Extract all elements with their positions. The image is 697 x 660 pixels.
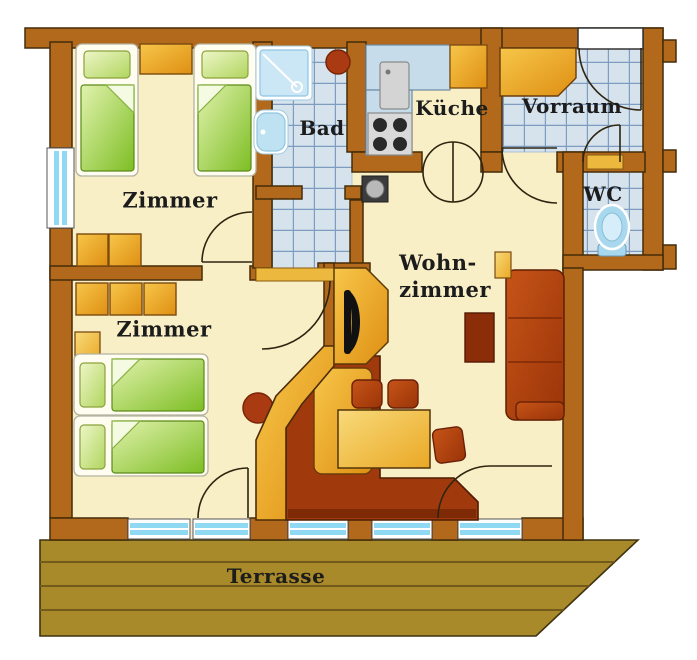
- bed-single: [76, 44, 138, 176]
- nightstand: [140, 44, 192, 74]
- terrace-door-bedroom2-glass: [193, 519, 250, 539]
- bed-double: [74, 354, 208, 476]
- wall-bath-east-lower: [350, 200, 363, 268]
- wall-bottom: [348, 518, 372, 540]
- coffee-table: [465, 313, 494, 362]
- wall-mid-band: [481, 152, 502, 172]
- wall-wc-west: [563, 152, 583, 270]
- toilet: [595, 205, 629, 256]
- wall-bedroom-divider: [50, 266, 202, 280]
- bath-sink: [254, 110, 288, 154]
- wall-pilaster: [663, 150, 676, 172]
- wall-bottom: [250, 518, 288, 540]
- wall-right-upper: [643, 28, 663, 270]
- dining-table: [338, 410, 430, 468]
- label-toilet: WC: [583, 182, 622, 206]
- bed-single: [194, 44, 256, 176]
- utility-column: [362, 176, 388, 202]
- window-left: [47, 148, 74, 228]
- hall-wardrobe: [500, 48, 576, 96]
- boiler: [326, 50, 350, 74]
- label-terrace: Terrasse: [227, 564, 326, 588]
- wall-left: [50, 42, 72, 148]
- kitchen-sink: [380, 62, 409, 109]
- wardrobe: [77, 234, 141, 266]
- wall-bath-stub: [345, 186, 361, 199]
- window-bottom: [372, 519, 432, 539]
- terrace-door-living-glass: [458, 519, 522, 539]
- sofa: [506, 270, 564, 420]
- label-bedroom2: Zimmer: [116, 317, 211, 342]
- label-bathroom: Bad: [299, 116, 344, 140]
- kitchen-cabinet: [450, 45, 487, 88]
- label-living-room: Wohn- zimmer: [399, 249, 491, 303]
- label-living-line2: zimmer: [399, 276, 491, 303]
- floor-plan: Zimmer Zimmer Bad Küche Vorraum WC Wohn-…: [0, 0, 697, 660]
- label-living-line1: Wohn-: [399, 249, 491, 276]
- wall-living-east: [563, 268, 583, 540]
- label-bedroom1: Zimmer: [122, 188, 217, 213]
- wall-pilaster: [663, 40, 676, 62]
- window-bottom: [288, 519, 348, 539]
- entrance-opening: [578, 28, 643, 49]
- wall-bottom: [432, 518, 458, 540]
- end-table: [495, 252, 511, 278]
- wardrobe: [76, 283, 176, 315]
- wall-bottom: [50, 518, 128, 540]
- window-bottom: [128, 519, 190, 539]
- wall-bath-stub: [256, 186, 302, 199]
- label-hallway: Vorraum: [522, 94, 622, 118]
- threshold-wc: [587, 155, 623, 169]
- threshold-bath: [256, 268, 344, 281]
- wall-pilaster: [663, 245, 676, 269]
- tv-cabinet: [334, 268, 388, 364]
- stove-bench-edge: [288, 509, 476, 518]
- label-kitchen: Küche: [415, 96, 488, 120]
- shower: [256, 46, 312, 100]
- terrace-deck: [40, 540, 660, 636]
- stove: [368, 113, 412, 155]
